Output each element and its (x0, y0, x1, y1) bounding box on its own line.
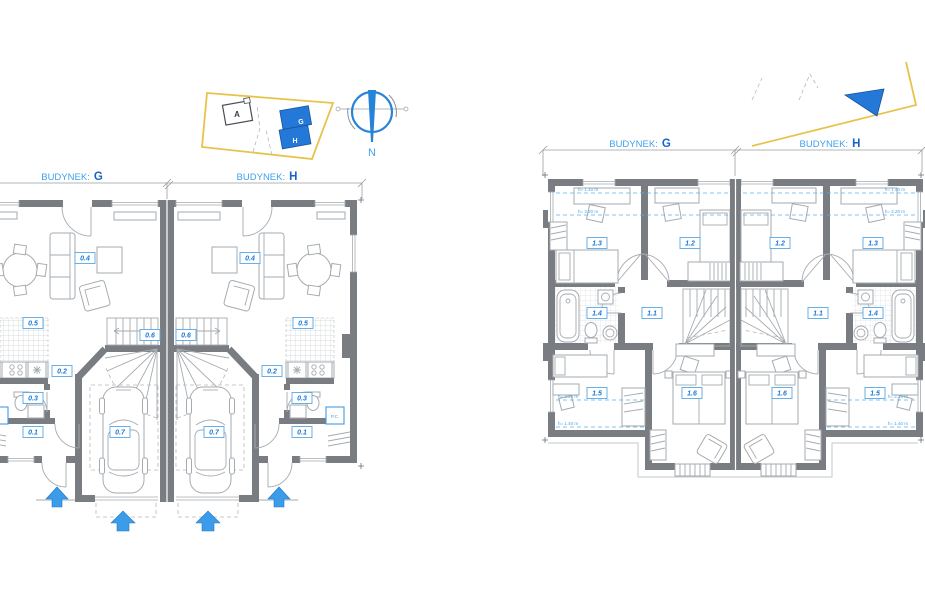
svg-text:0.2: 0.2 (267, 369, 277, 376)
site-mini-map: A G H (202, 93, 333, 159)
wardrobe-icon (650, 430, 666, 460)
svg-text:1.4: 1.4 (592, 311, 602, 318)
svg-text:1.5: 1.5 (592, 391, 602, 398)
height-label: h= 2.20 m (888, 394, 908, 399)
bath-sink-icon (603, 326, 617, 340)
svg-text:0.6: 0.6 (181, 333, 191, 340)
svg-text:1.4: 1.4 (868, 311, 878, 318)
svg-text:1.6: 1.6 (777, 391, 787, 398)
svg-text:0.3: 0.3 (297, 396, 307, 403)
site-building-h-label: H (292, 138, 297, 145)
garage-arrow-icon (196, 511, 220, 531)
uf-title-h: BUDYNEK:H (800, 138, 861, 150)
gf-dimension-line: BUDYNEK:G BUDYNEK:H (0, 171, 366, 199)
floor-plan-sheet: A G H N BUDYNEK:G BUDYNEK:H (0, 0, 925, 591)
heat-pump-label: P.C. (331, 414, 339, 419)
room-label-g-02: 0.2 (52, 366, 72, 377)
site-building-g-label: G (298, 119, 304, 126)
sofa-icon (259, 233, 284, 299)
sink-icon (288, 362, 306, 378)
svg-text:0.4: 0.4 (245, 256, 255, 263)
room-label-g-12: 1.2 (680, 238, 700, 249)
svg-text:1.6: 1.6 (687, 391, 697, 398)
site-boundary (202, 93, 333, 159)
site-building-a-label: A (234, 110, 240, 119)
room-label-h-01: 0.1 (292, 427, 312, 438)
site-building-icon (845, 89, 884, 116)
uf-unit-geometry (543, 179, 741, 476)
height-label: h= 2.20 m (578, 209, 598, 214)
desk-icon (676, 344, 714, 374)
compass-rose: N (336, 90, 408, 159)
svg-text:0.7: 0.7 (115, 430, 126, 437)
armchair-icon (223, 280, 255, 312)
gf-title-g: BUDYNEK:G (41, 171, 103, 183)
svg-text:0.4: 0.4 (80, 256, 90, 263)
dining-table-icon (287, 244, 341, 296)
room-label-h-13: 1.3 (863, 238, 883, 249)
washer-icon (598, 290, 613, 304)
room-label-h-06: 0.6 (176, 330, 196, 341)
room-label-h-05: 0.5 (293, 318, 313, 329)
height-label: h= 2.20 m (885, 209, 905, 214)
svg-text:0.1: 0.1 (297, 430, 307, 437)
height-label: h= 1.40 m (885, 187, 905, 192)
height-label: h= 1.40 m (578, 187, 598, 192)
wardrobe-icon (688, 262, 731, 281)
room-label-h-03: 0.3 (292, 393, 312, 404)
svg-text:0.2: 0.2 (57, 369, 67, 376)
entrance-arrow-icon (268, 487, 290, 507)
upper-floor-plan: 1.3 1.2 1.2 1.3 1.4 1.1 1.1 1.4 1.5 1.6 … (542, 172, 925, 477)
uf-title-g: BUDYNEK:G (609, 138, 671, 150)
room-label-g-05: 0.5 (23, 318, 43, 329)
svg-text:0.1: 0.1 (28, 430, 38, 437)
svg-text:1.2: 1.2 (775, 241, 785, 248)
svg-text:0.5: 0.5 (298, 321, 308, 328)
armchair-icon (696, 433, 728, 464)
svg-text:1.5: 1.5 (870, 391, 880, 398)
svg-text:0.6: 0.6 (145, 333, 155, 340)
room-label-h-07: 0.7 (204, 427, 224, 438)
window-sill-hatch (675, 464, 710, 476)
room-label-h-15: 1.5 (865, 388, 885, 399)
room-label-g-06: 0.6 (140, 330, 160, 341)
room-label-g-07: 0.7 (110, 427, 130, 438)
wardrobe-icon (550, 222, 567, 250)
svg-text:1.1: 1.1 (813, 311, 823, 318)
ground-floor-plan: 0.4 0.4 0.5 0.5 0.6 0.6 0.2 0.2 0.3 0.3 … (0, 197, 364, 531)
radiator-icon (317, 212, 345, 219)
room-label-g-11: 1.1 (642, 308, 662, 319)
svg-text:1.1: 1.1 (647, 311, 657, 318)
stove-icon (308, 362, 332, 378)
toilet-icon (585, 323, 597, 344)
car-icon (187, 387, 235, 493)
wardrobe-icon (622, 388, 645, 426)
room-label-h-02: 0.2 (262, 366, 282, 377)
bed-icon (556, 250, 618, 283)
room-label-g-01: 0.1 (23, 427, 43, 438)
room-label-h-04: 0.4 (240, 253, 260, 264)
stairs (683, 289, 730, 346)
garage-arrow-icon (111, 511, 135, 531)
table-icon (212, 247, 237, 273)
svg-text:0.3: 0.3 (28, 396, 38, 403)
bath-sink-icon (290, 405, 306, 418)
uf-dimension-line: BUDYNEK:G BUDYNEK:H (539, 138, 925, 176)
height-label: h= 1.40 m (558, 421, 578, 426)
room-label-g-03: 0.3 (23, 393, 43, 404)
compass-north-label: N (368, 147, 376, 159)
site-road-line (253, 106, 260, 152)
height-label: h= 1.40 m (888, 421, 908, 426)
gf-title-h: BUDYNEK:H (237, 171, 298, 183)
svg-text:1.2: 1.2 (685, 241, 695, 248)
fridge-icon (342, 334, 350, 358)
svg-text:0.5: 0.5 (28, 321, 38, 328)
room-label-g-13: 1.3 (587, 238, 607, 249)
room-label-g-04: 0.4 (75, 253, 95, 264)
site-mini-map-partial (752, 62, 916, 146)
room-label-h-11: 1.1 (808, 308, 828, 319)
svg-text:1.3: 1.3 (592, 241, 602, 248)
room-label-g-15: 1.5 (587, 388, 607, 399)
compass-needle-icon (368, 90, 376, 142)
room-label-h-12: 1.2 (770, 238, 790, 249)
svg-text:0.7: 0.7 (209, 430, 220, 437)
height-label: h= 2.20 m (558, 394, 578, 399)
bed-icon (553, 355, 607, 377)
room-label-h-14: 1.4 (863, 308, 883, 319)
gf-unit-geometry (160, 200, 357, 517)
radiator-icon (178, 212, 220, 220)
entrance-arrow-icon (46, 487, 68, 507)
room-label-h-16: 1.6 (772, 388, 792, 399)
bathtub-icon (557, 290, 579, 342)
floor-plan-drawing: A G H N BUDYNEK:G BUDYNEK:H (0, 0, 925, 591)
shoe-rack-icon (328, 432, 350, 446)
room-label-g-14: 1.4 (587, 308, 607, 319)
svg-text:1.3: 1.3 (868, 241, 878, 248)
site-road-line (266, 130, 272, 155)
room-label-g-16: 1.6 (682, 388, 702, 399)
